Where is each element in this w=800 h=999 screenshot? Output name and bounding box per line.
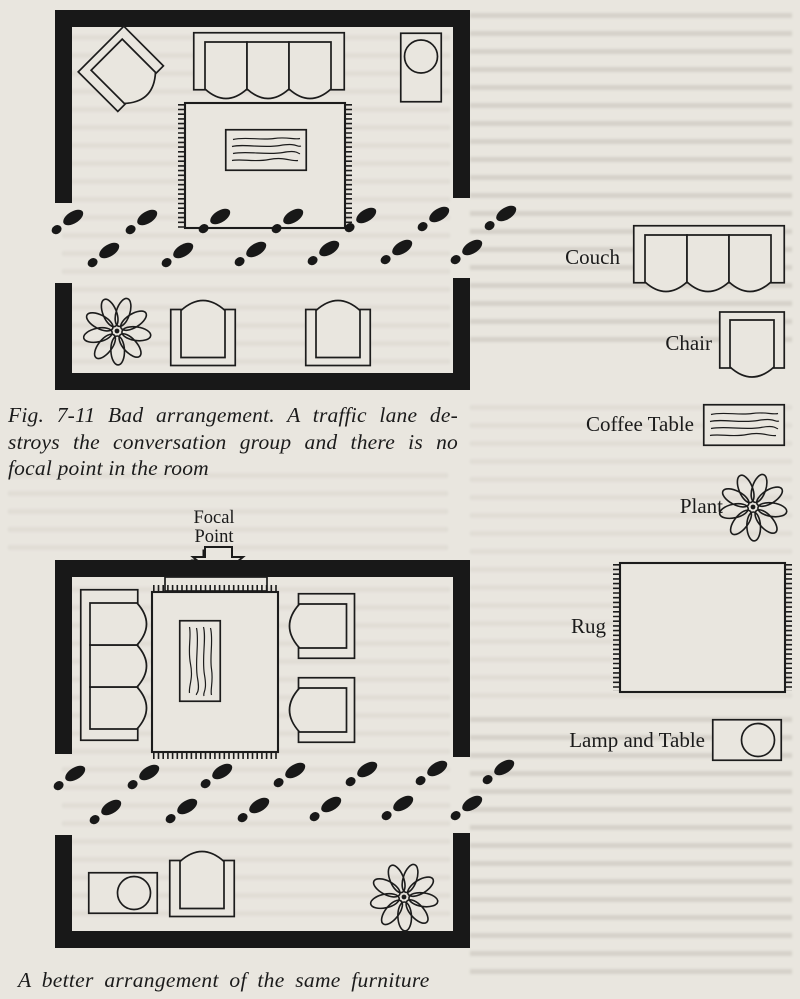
chair-symbol: [290, 594, 355, 659]
plant-symbol: [369, 863, 438, 932]
plant-symbol: [718, 473, 787, 542]
legend-label-chair: Chair: [665, 331, 712, 356]
legend-symbols: [617, 226, 789, 761]
couch-symbol: [194, 33, 345, 99]
caption-line: Fig. 7-11 Bad arrangement. A traffic lan…: [8, 402, 458, 429]
legend-label-coffee-table: Coffee Table: [586, 412, 694, 437]
rug-symbol: [617, 563, 789, 692]
chair-symbol: [78, 26, 170, 118]
coffee-table-symbol: [180, 621, 221, 702]
chair-symbol: [720, 312, 785, 377]
focal-point-label: Focal Point: [177, 509, 251, 548]
figure-caption-better: A better arrangement of the same furnitu…: [18, 968, 430, 993]
plant-symbol: [82, 297, 151, 366]
coffee-table-symbol: [226, 130, 307, 171]
coffee-table-symbol: [704, 405, 785, 446]
couch-symbol: [81, 590, 147, 741]
chair-symbol: [170, 852, 235, 917]
caption-line: stroys the conversation group and there …: [8, 429, 458, 456]
traffic-lane-footprints: [50, 757, 517, 827]
legend-label-lamp-and-table: Lamp and Table: [569, 728, 705, 753]
book-page: Fig. 7-11 Bad arrangement. A traffic lan…: [0, 0, 800, 999]
figure-caption-bad: Fig. 7-11 Bad arrangement. A traffic lan…: [8, 402, 458, 482]
legend-label-rug: Rug: [571, 614, 606, 639]
chair-symbol: [290, 678, 355, 743]
room-better-arrangement: [50, 560, 517, 948]
room-bad-arrangement: [48, 10, 519, 390]
chair-symbol: [171, 301, 236, 366]
lamp-and-table-symbol: [713, 720, 782, 761]
caption-line: focal point in the room: [8, 455, 458, 482]
legend-label-couch: Couch: [565, 245, 620, 270]
lamp-and-table-symbol: [89, 873, 158, 914]
couch-symbol: [634, 226, 785, 292]
lamp-and-table-symbol: [401, 33, 442, 102]
chair-symbol: [306, 301, 371, 366]
legend-label-plant: Plant: [680, 494, 723, 519]
